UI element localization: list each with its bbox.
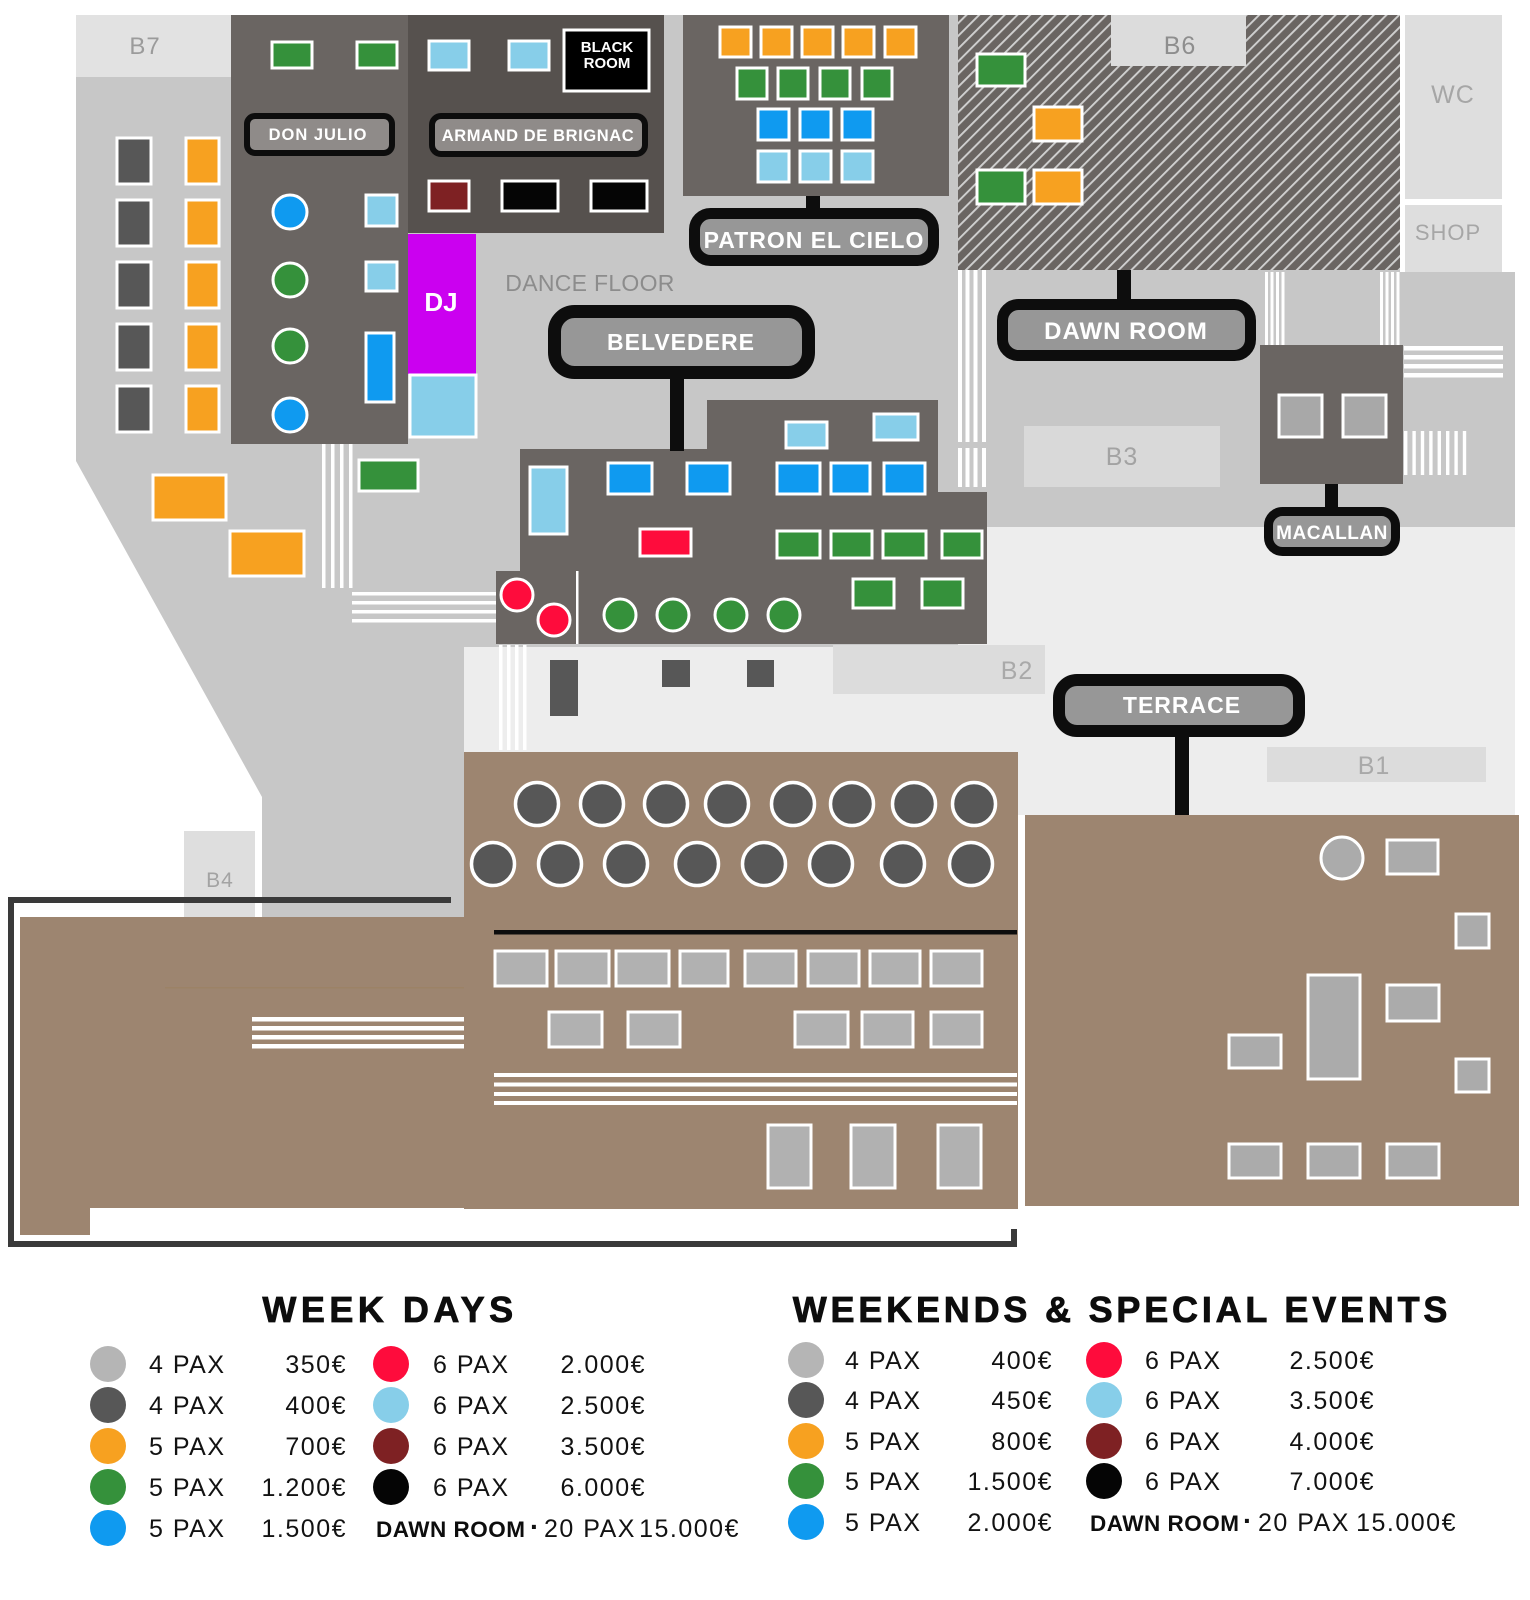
svg-text:B7: B7 xyxy=(129,33,160,60)
svg-text:1.500€: 1.500€ xyxy=(262,1515,347,1543)
svg-text:1.200€: 1.200€ xyxy=(262,1474,347,1502)
svg-text:400€: 400€ xyxy=(285,1392,347,1420)
svg-text:450€: 450€ xyxy=(991,1387,1053,1415)
svg-text:2.000€: 2.000€ xyxy=(561,1351,646,1379)
svg-text:B1: B1 xyxy=(1358,752,1391,780)
svg-text:WEEK DAYS: WEEK DAYS xyxy=(262,1289,517,1330)
svg-text:DANCE FLOOR: DANCE FLOOR xyxy=(505,270,674,296)
svg-text:3.500€: 3.500€ xyxy=(1290,1387,1375,1415)
svg-text:4.000€: 4.000€ xyxy=(1290,1428,1375,1456)
svg-text:DAWN ROOM: DAWN ROOM xyxy=(376,1517,526,1542)
svg-text:4 PAX: 4 PAX xyxy=(845,1387,922,1415)
svg-text:400€: 400€ xyxy=(991,1347,1053,1375)
svg-text:3.500€: 3.500€ xyxy=(561,1433,646,1461)
svg-text:6 PAX: 6 PAX xyxy=(433,1392,510,1420)
svg-text:4 PAX: 4 PAX xyxy=(149,1351,226,1379)
svg-text:6 PAX: 6 PAX xyxy=(433,1351,510,1379)
svg-text:15.000€: 15.000€ xyxy=(639,1515,740,1543)
svg-text:DAWN ROOM: DAWN ROOM xyxy=(1044,318,1208,345)
svg-text:B3: B3 xyxy=(1106,443,1139,471)
svg-text:WEEKENDS & SPECIAL EVENTS: WEEKENDS & SPECIAL EVENTS xyxy=(793,1289,1451,1330)
svg-text:6 PAX: 6 PAX xyxy=(433,1474,510,1502)
svg-text:B4: B4 xyxy=(206,869,234,892)
svg-text:1.500€: 1.500€ xyxy=(968,1468,1053,1496)
svg-text:6 PAX: 6 PAX xyxy=(1145,1347,1222,1375)
svg-text:2.500€: 2.500€ xyxy=(1290,1347,1375,1375)
svg-text:6 PAX: 6 PAX xyxy=(1145,1428,1222,1456)
svg-text:PATRON EL CIELO: PATRON EL CIELO xyxy=(704,227,925,253)
svg-text:5 PAX: 5 PAX xyxy=(845,1428,922,1456)
svg-text:DJ: DJ xyxy=(424,287,457,317)
svg-text:TERRACE: TERRACE xyxy=(1123,692,1241,718)
svg-text:2.500€: 2.500€ xyxy=(561,1392,646,1420)
svg-text:B2: B2 xyxy=(1001,657,1034,685)
svg-text:WC: WC xyxy=(1431,81,1475,109)
svg-text:15.000€: 15.000€ xyxy=(1356,1509,1457,1537)
svg-text:350€: 350€ xyxy=(285,1351,347,1379)
svg-text:700€: 700€ xyxy=(285,1433,347,1461)
svg-text:800€: 800€ xyxy=(991,1428,1053,1456)
svg-text:5 PAX: 5 PAX xyxy=(845,1468,922,1496)
svg-text:5 PAX: 5 PAX xyxy=(149,1433,226,1461)
svg-text:2.000€: 2.000€ xyxy=(968,1509,1053,1537)
svg-text:6 PAX: 6 PAX xyxy=(1145,1468,1222,1496)
svg-text:ROOM: ROOM xyxy=(584,55,631,72)
svg-text:6 PAX: 6 PAX xyxy=(433,1433,510,1461)
svg-text:B6: B6 xyxy=(1164,32,1197,60)
svg-text:ARMAND DE BRIGNAC: ARMAND DE BRIGNAC xyxy=(442,127,635,145)
svg-text:4 PAX: 4 PAX xyxy=(845,1347,922,1375)
svg-text:5 PAX: 5 PAX xyxy=(149,1515,226,1543)
svg-text:6 PAX: 6 PAX xyxy=(1145,1387,1222,1415)
svg-text:5 PAX: 5 PAX xyxy=(149,1474,226,1502)
svg-text:7.000€: 7.000€ xyxy=(1290,1468,1375,1496)
svg-text:BLACK: BLACK xyxy=(581,39,634,56)
svg-text:SHOP: SHOP xyxy=(1415,220,1481,245)
svg-text:5 PAX: 5 PAX xyxy=(845,1509,922,1537)
svg-text:MACALLAN: MACALLAN xyxy=(1276,523,1388,544)
svg-text:4 PAX: 4 PAX xyxy=(149,1392,226,1420)
svg-text:20 PAX: 20 PAX xyxy=(1258,1509,1350,1537)
svg-text:20 PAX: 20 PAX xyxy=(544,1515,636,1543)
svg-text:DAWN ROOM: DAWN ROOM xyxy=(1090,1511,1240,1536)
svg-text:6.000€: 6.000€ xyxy=(561,1474,646,1502)
svg-text:DON JULIO: DON JULIO xyxy=(269,126,368,144)
svg-text:·: · xyxy=(530,1511,539,1542)
svg-text:·: · xyxy=(1243,1505,1252,1536)
svg-text:BELVEDERE: BELVEDERE xyxy=(607,329,755,355)
